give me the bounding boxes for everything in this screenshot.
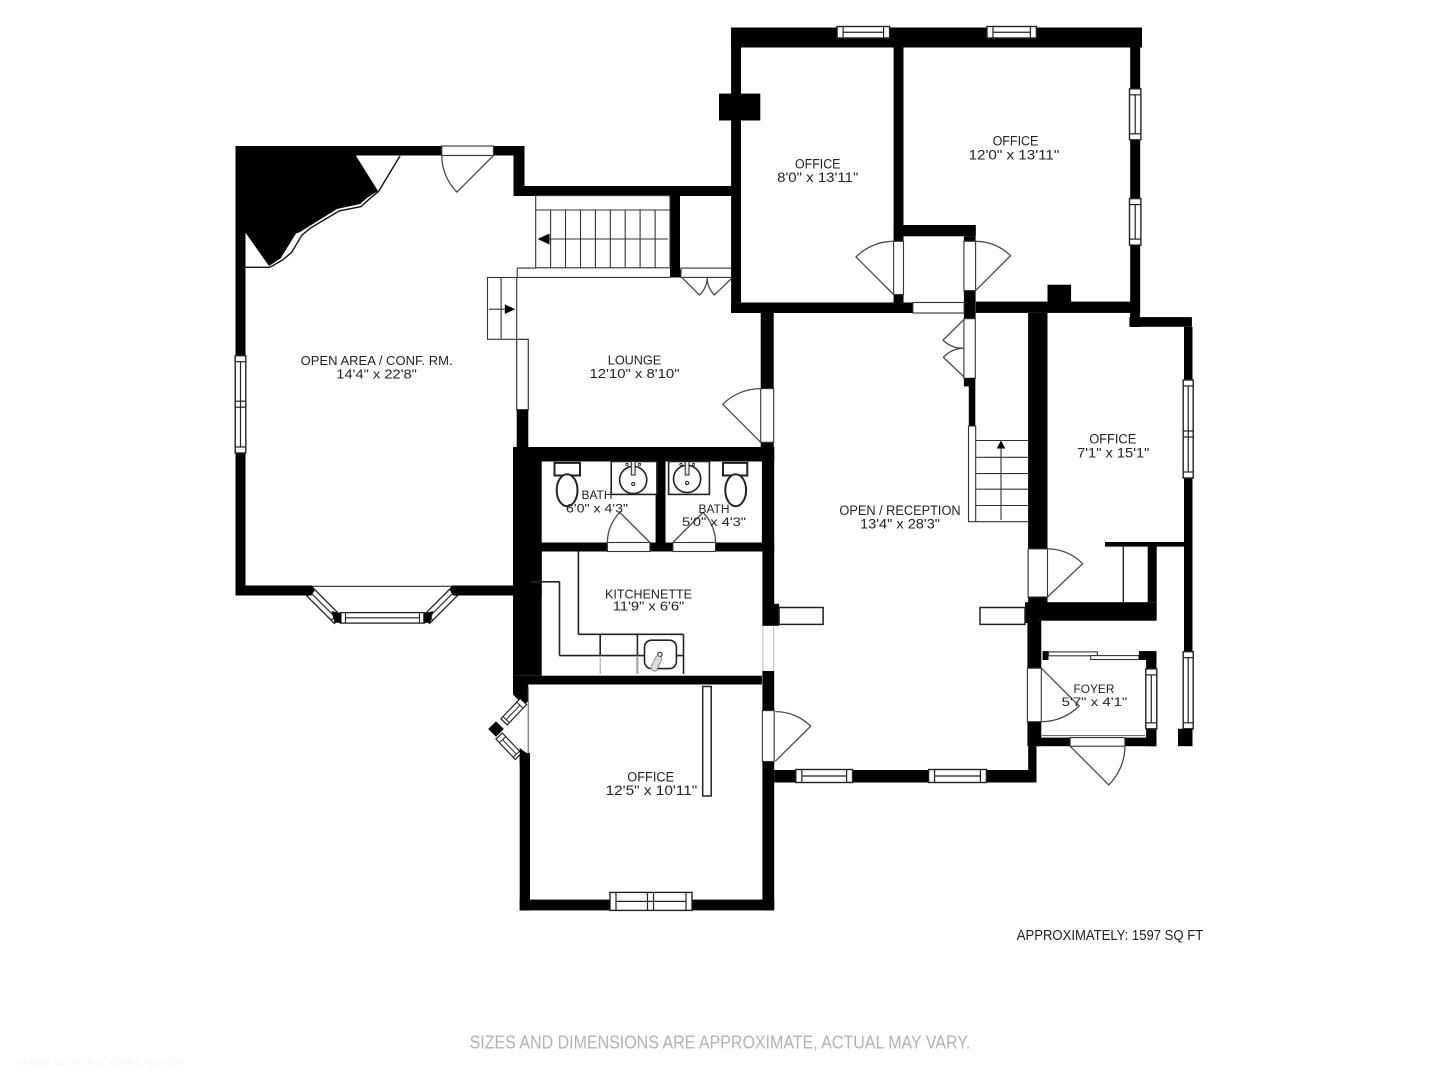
svg-text:14'4" x 22'8": 14'4" x 22'8"	[336, 367, 417, 382]
svg-text:BATH: BATH	[699, 502, 730, 516]
svg-text:FOYER: FOYER	[1074, 682, 1115, 696]
svg-text:8'0" x 13'11": 8'0" x 13'11"	[777, 170, 858, 185]
svg-text:OFFICE: OFFICE	[993, 134, 1039, 149]
svg-text:12'5" x 10'11": 12'5" x 10'11"	[606, 783, 698, 798]
svg-text:12'10" x 8'10": 12'10" x 8'10"	[590, 366, 680, 381]
svg-text:OFFICE: OFFICE	[1089, 431, 1136, 446]
svg-text:OFFICE: OFFICE	[795, 156, 840, 171]
svg-text:5'7" x 4'1": 5'7" x 4'1"	[1062, 695, 1128, 709]
svg-text:LOUNGE: LOUNGE	[608, 352, 662, 367]
svg-text:12'0" x 13'11": 12'0" x 13'11"	[969, 148, 1060, 163]
svg-text:7'1" x 15'1": 7'1" x 15'1"	[1077, 445, 1150, 460]
svg-text:SIZES AND DIMENSIONS ARE APPRO: SIZES AND DIMENSIONS ARE APPROXIMATE, AC…	[470, 1032, 971, 1053]
svg-text:6'0" x 4'3": 6'0" x 4'3"	[566, 502, 628, 516]
svg-text:APPROXIMATELY: 1597 SQ FT: APPROXIMATELY: 1597 SQ FT	[1017, 928, 1203, 944]
svg-text:11'9" x 6'6": 11'9" x 6'6"	[613, 599, 685, 613]
svg-text:MADE WITH FLOORPLANNER: MADE WITH FLOORPLANNER	[17, 1057, 183, 1069]
svg-text:13'4" x 28'3": 13'4" x 28'3"	[860, 516, 940, 531]
svg-text:5'0" x 4'3": 5'0" x 4'3"	[682, 515, 746, 529]
svg-text:BATH: BATH	[582, 488, 613, 502]
